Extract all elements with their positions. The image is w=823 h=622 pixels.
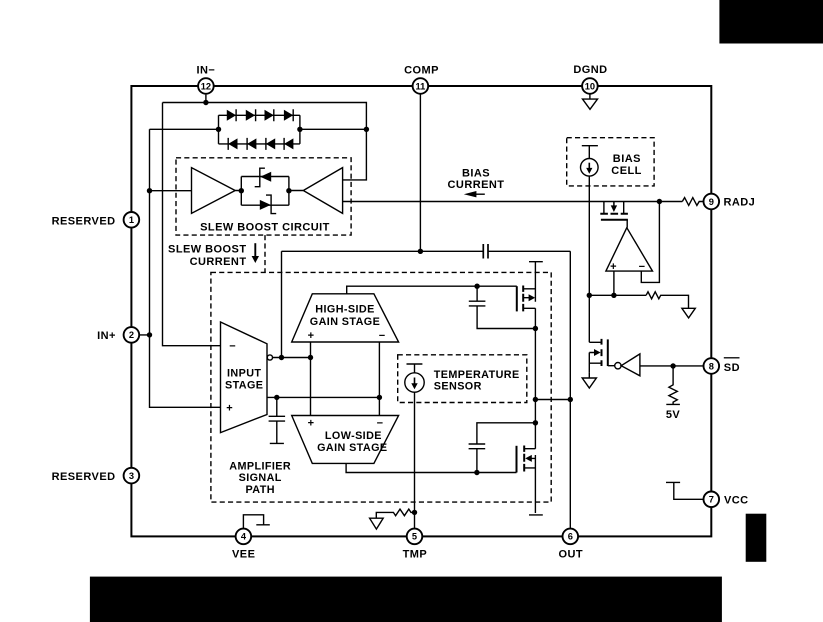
- svg-text:8: 8: [709, 361, 714, 371]
- svg-text:5: 5: [412, 532, 417, 542]
- svg-text:VCC: VCC: [724, 495, 749, 507]
- svg-text:BIAS: BIAS: [462, 168, 490, 180]
- svg-text:5V: 5V: [666, 409, 681, 421]
- svg-text:RESERVED: RESERVED: [52, 215, 116, 227]
- svg-text:10: 10: [585, 81, 595, 91]
- svg-text:2: 2: [129, 330, 134, 340]
- svg-text:+: +: [308, 417, 314, 429]
- svg-text:6: 6: [568, 532, 573, 542]
- svg-text:CURRENT: CURRENT: [448, 179, 505, 191]
- svg-text:+: +: [610, 261, 616, 273]
- svg-text:INPUT: INPUT: [227, 367, 261, 379]
- svg-text:TMP: TMP: [403, 549, 428, 561]
- svg-text:SLEW BOOST CIRCUIT: SLEW BOOST CIRCUIT: [200, 221, 330, 233]
- svg-text:OUT: OUT: [559, 549, 584, 561]
- svg-text:STAGE: STAGE: [225, 379, 263, 391]
- svg-text:LOW-SIDE: LOW-SIDE: [325, 430, 382, 442]
- svg-text:4: 4: [241, 532, 247, 542]
- svg-text:GAIN STAGE: GAIN STAGE: [317, 442, 387, 454]
- svg-text:IN−: IN−: [197, 64, 216, 76]
- svg-text:+: +: [226, 403, 232, 415]
- svg-text:DGND: DGND: [573, 64, 607, 76]
- svg-text:SENSOR: SENSOR: [434, 380, 482, 392]
- svg-text:1: 1: [129, 215, 134, 225]
- svg-text:SD: SD: [724, 362, 740, 374]
- svg-text:GAIN STAGE: GAIN STAGE: [310, 316, 380, 328]
- svg-text:−: −: [379, 330, 385, 342]
- svg-text:−: −: [229, 341, 235, 353]
- svg-text:VEE: VEE: [232, 549, 255, 561]
- svg-text:11: 11: [415, 81, 425, 91]
- svg-text:12: 12: [201, 81, 211, 91]
- svg-text:3: 3: [129, 471, 134, 481]
- svg-text:CELL: CELL: [611, 165, 642, 177]
- svg-text:BIAS: BIAS: [613, 153, 641, 165]
- svg-text:+: +: [308, 330, 314, 342]
- svg-text:PATH: PATH: [246, 484, 275, 496]
- svg-text:−: −: [639, 261, 645, 273]
- svg-text:SLEW BOOST: SLEW BOOST: [168, 244, 246, 256]
- svg-text:7: 7: [709, 495, 714, 505]
- svg-text:RESERVED: RESERVED: [52, 471, 116, 483]
- svg-text:CURRENT: CURRENT: [190, 256, 247, 268]
- svg-text:COMP: COMP: [404, 64, 439, 76]
- svg-text:SIGNAL: SIGNAL: [239, 472, 282, 484]
- svg-text:HIGH-SIDE: HIGH-SIDE: [315, 304, 374, 316]
- svg-text:AMPLIFIER: AMPLIFIER: [229, 460, 291, 472]
- svg-text:−: −: [377, 417, 383, 429]
- svg-text:IN+: IN+: [97, 330, 116, 342]
- svg-text:9: 9: [709, 197, 714, 207]
- svg-text:RADJ: RADJ: [724, 196, 756, 208]
- svg-text:TEMPERATURE: TEMPERATURE: [434, 369, 520, 381]
